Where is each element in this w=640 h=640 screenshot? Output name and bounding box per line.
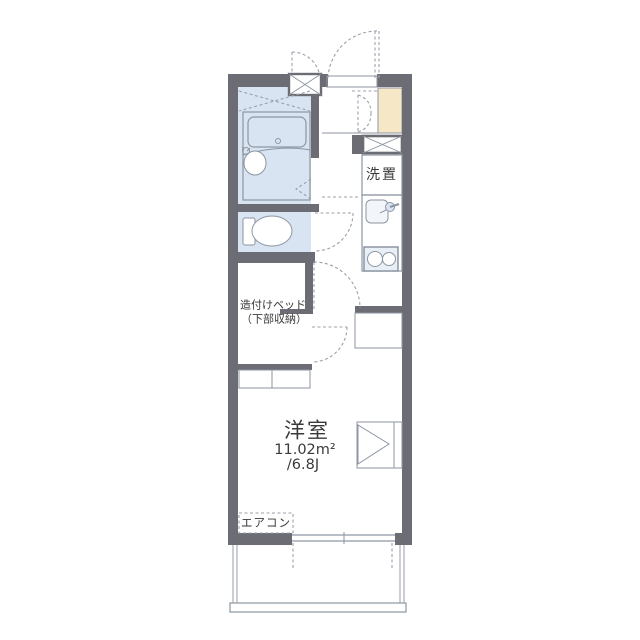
wall-right xyxy=(402,74,412,545)
balcony-dashed-lines xyxy=(293,543,392,568)
refrigerator-space xyxy=(355,313,402,348)
label-laundry: 洗置 xyxy=(366,168,398,182)
balcony-side-lines xyxy=(233,545,404,603)
entrance-door-swing-arc xyxy=(328,31,377,80)
label-room-area-tatami: /6.8J xyxy=(287,458,319,473)
entrance-threshold xyxy=(327,76,377,87)
bed-storage-boxes xyxy=(239,370,310,388)
interior-doors xyxy=(312,262,360,362)
wall-bed-right xyxy=(305,263,313,314)
label-built-in-bed-line1: 造付けベッド xyxy=(240,300,306,311)
wall-bed-bottom xyxy=(237,364,312,370)
stove-burner-right xyxy=(383,253,396,266)
wall-bottom-right xyxy=(395,533,412,545)
wall-toilet-bottom xyxy=(228,252,315,263)
floorplan-drawing xyxy=(0,0,640,640)
toilet-door-swing-arc xyxy=(315,213,353,251)
label-built-in-bed-line2: （下部収納） xyxy=(241,314,307,325)
wall-bottom-left xyxy=(228,533,292,545)
floorplan-canvas: 洗置 造付けベッド （下部収納） 洋室 11.02m² /6.8J エアコン xyxy=(0,0,640,640)
wall-bathroom-bottom xyxy=(237,204,319,212)
balcony-railing xyxy=(230,603,406,612)
kitchen-sink xyxy=(366,200,388,223)
wall-bathroom-corridor xyxy=(311,87,319,158)
label-room-area-sqm: 11.02m² xyxy=(274,443,335,458)
wall-left xyxy=(228,74,238,545)
bed-room-door-swing-arc xyxy=(312,327,347,362)
kitchen xyxy=(322,136,402,271)
stove-burner-left xyxy=(368,252,383,267)
wall-mid-right xyxy=(355,306,402,313)
label-aircon: エアコン xyxy=(241,517,291,529)
toilet-bowl xyxy=(252,216,292,246)
wall-kitchen-stub xyxy=(352,135,363,154)
label-room-name: 洋室 xyxy=(284,421,330,442)
main-room-door-swing-arc xyxy=(314,262,360,308)
genkan-closet-door-symbol xyxy=(358,95,371,132)
shoe-cabinet xyxy=(378,88,402,133)
